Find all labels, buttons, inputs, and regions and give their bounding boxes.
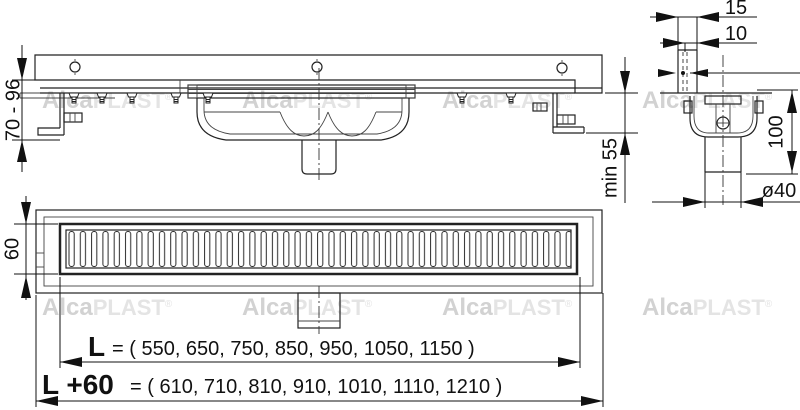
alcaplast-watermark: AlcaPLAST® [242,294,373,321]
grate-slots [66,230,571,268]
alcaplast-watermark: AlcaPLAST® [642,294,773,321]
alcaplast-watermark: AlcaPLAST® [42,294,173,321]
length-l-label: L [88,331,105,362]
length-l60-values: = ( 610, 710, 810, 910, 1010, 1110, 1210… [130,376,502,398]
alcaplast-watermark: AlcaPLAST® [442,294,573,321]
dim-pipe-diameter: ø40 [652,172,800,208]
dim-grate-width-label: 60 [1,238,23,260]
dim-min-depth-label: min 55 [599,138,621,198]
dim-15-label: 15 [725,0,747,19]
dim-100-label: 100 [765,115,787,148]
drain-grate [60,224,577,274]
outlet-pipe-section [705,55,741,205]
dim-pipe-diameter-label: ø40 [762,180,796,202]
flange-thickness-pointer [658,69,800,77]
flange-screw-holes [70,59,567,76]
length-l-values: = ( 550, 650, 750, 850, 950, 1050, 1150 … [112,338,475,360]
side-view: 70 - 96 min 55 [2,45,638,203]
dim-min-depth: min 55 [586,57,638,203]
alcaplast-watermark: AlcaPLAST® [42,87,173,114]
technical-drawing-page: AlcaPLAST® AlcaPLAST® AlcaPLAST® AlcaPLA… [0,0,800,410]
dim-10-label: 10 [725,23,747,45]
dim-grate-width: 60 [1,196,58,300]
dim-height-range-label: 70 - 96 [2,79,24,141]
dim-flange-gap: 10 [660,23,757,52]
dim-length-l: L = ( 550, 650, 750, 850, 950, 1050, 115… [60,277,580,368]
drain-technical-drawing: AlcaPLAST® AlcaPLAST® AlcaPLAST® AlcaPLA… [0,0,800,410]
alcaplast-watermark: AlcaPLAST® [242,87,373,114]
length-l60-label: L +60 [42,369,114,400]
